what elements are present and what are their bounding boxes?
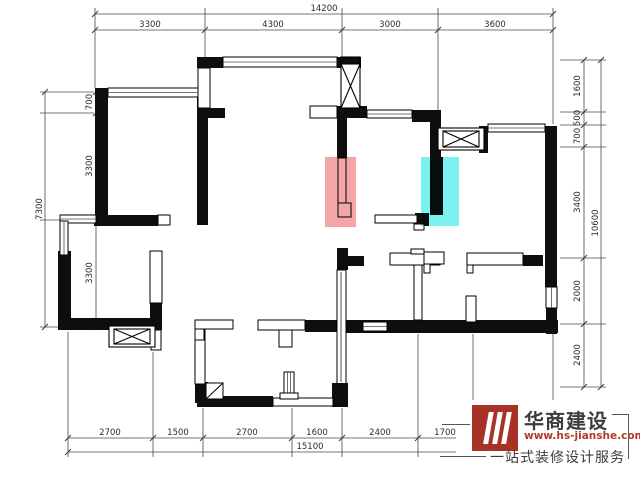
dim-bottom-seg: 1500 [167,428,189,438]
cyan-highlight [421,157,459,226]
windows [60,57,557,399]
dim-top-seg: 3000 [379,20,401,30]
extension-lines [40,8,606,457]
dim-bottom-seg: 2700 [236,428,258,438]
company-logo: 华商建设 www.hs-jianshe.com 一站式装修设计服务 [456,400,640,477]
dim-right-seg: 500 [573,110,583,126]
dim-left-seg: 3300 [85,155,95,177]
tagline-line [440,456,486,457]
dim-right-seg: 2400 [573,344,583,366]
dim-top-seg: 3300 [139,20,161,30]
window [488,124,545,132]
dim-right-seg: 700 [573,128,583,144]
shaft-box-icon [109,326,155,347]
dim-left-total: 7300 [35,198,45,220]
company-website: www.hs-jianshe.com [524,430,640,442]
dim-top-total: 14200 [310,4,337,14]
window [363,322,387,331]
dim-bottom-seg: 1700 [434,428,456,438]
dim-bottom-seg: 1600 [306,428,328,438]
dimension-top: 14200 3300 4300 3000 3600 [92,4,556,33]
logo-connector-line [442,424,470,425]
dim-right-seg: 3400 [573,191,583,213]
vent-pipe [280,372,298,399]
dim-bottom-total: 15100 [296,442,323,452]
window [223,57,337,67]
window [367,110,412,118]
dimension-right: 1600 500 700 3400 2000 2400 10600 [573,57,604,390]
window [546,287,557,308]
pink-highlight [325,157,356,227]
dim-top-seg: 4300 [262,20,284,30]
company-tagline: 一站式装修设计服务 [490,447,625,467]
dim-right-total: 10600 [591,209,601,236]
floor-plan-screenshot: 14200 3300 4300 3000 3600 7300 700 3300 … [0,0,640,477]
walls [58,57,558,407]
dim-bottom-seg: 2700 [99,428,121,438]
window [108,88,198,97]
corner-window [60,215,96,255]
dim-left-seg: 700 [85,94,95,110]
dim-right-seg: 1600 [573,75,583,97]
dim-left-seg: 3300 [85,262,95,284]
dim-right-seg: 2000 [573,280,583,302]
company-logo-icon [472,405,518,451]
shaft-box-icon [341,57,360,108]
dim-bottom-seg: 2400 [369,428,391,438]
door-swing-icon [206,383,223,399]
dim-top-seg: 3600 [484,20,506,30]
shaft-box-icon [438,128,484,150]
